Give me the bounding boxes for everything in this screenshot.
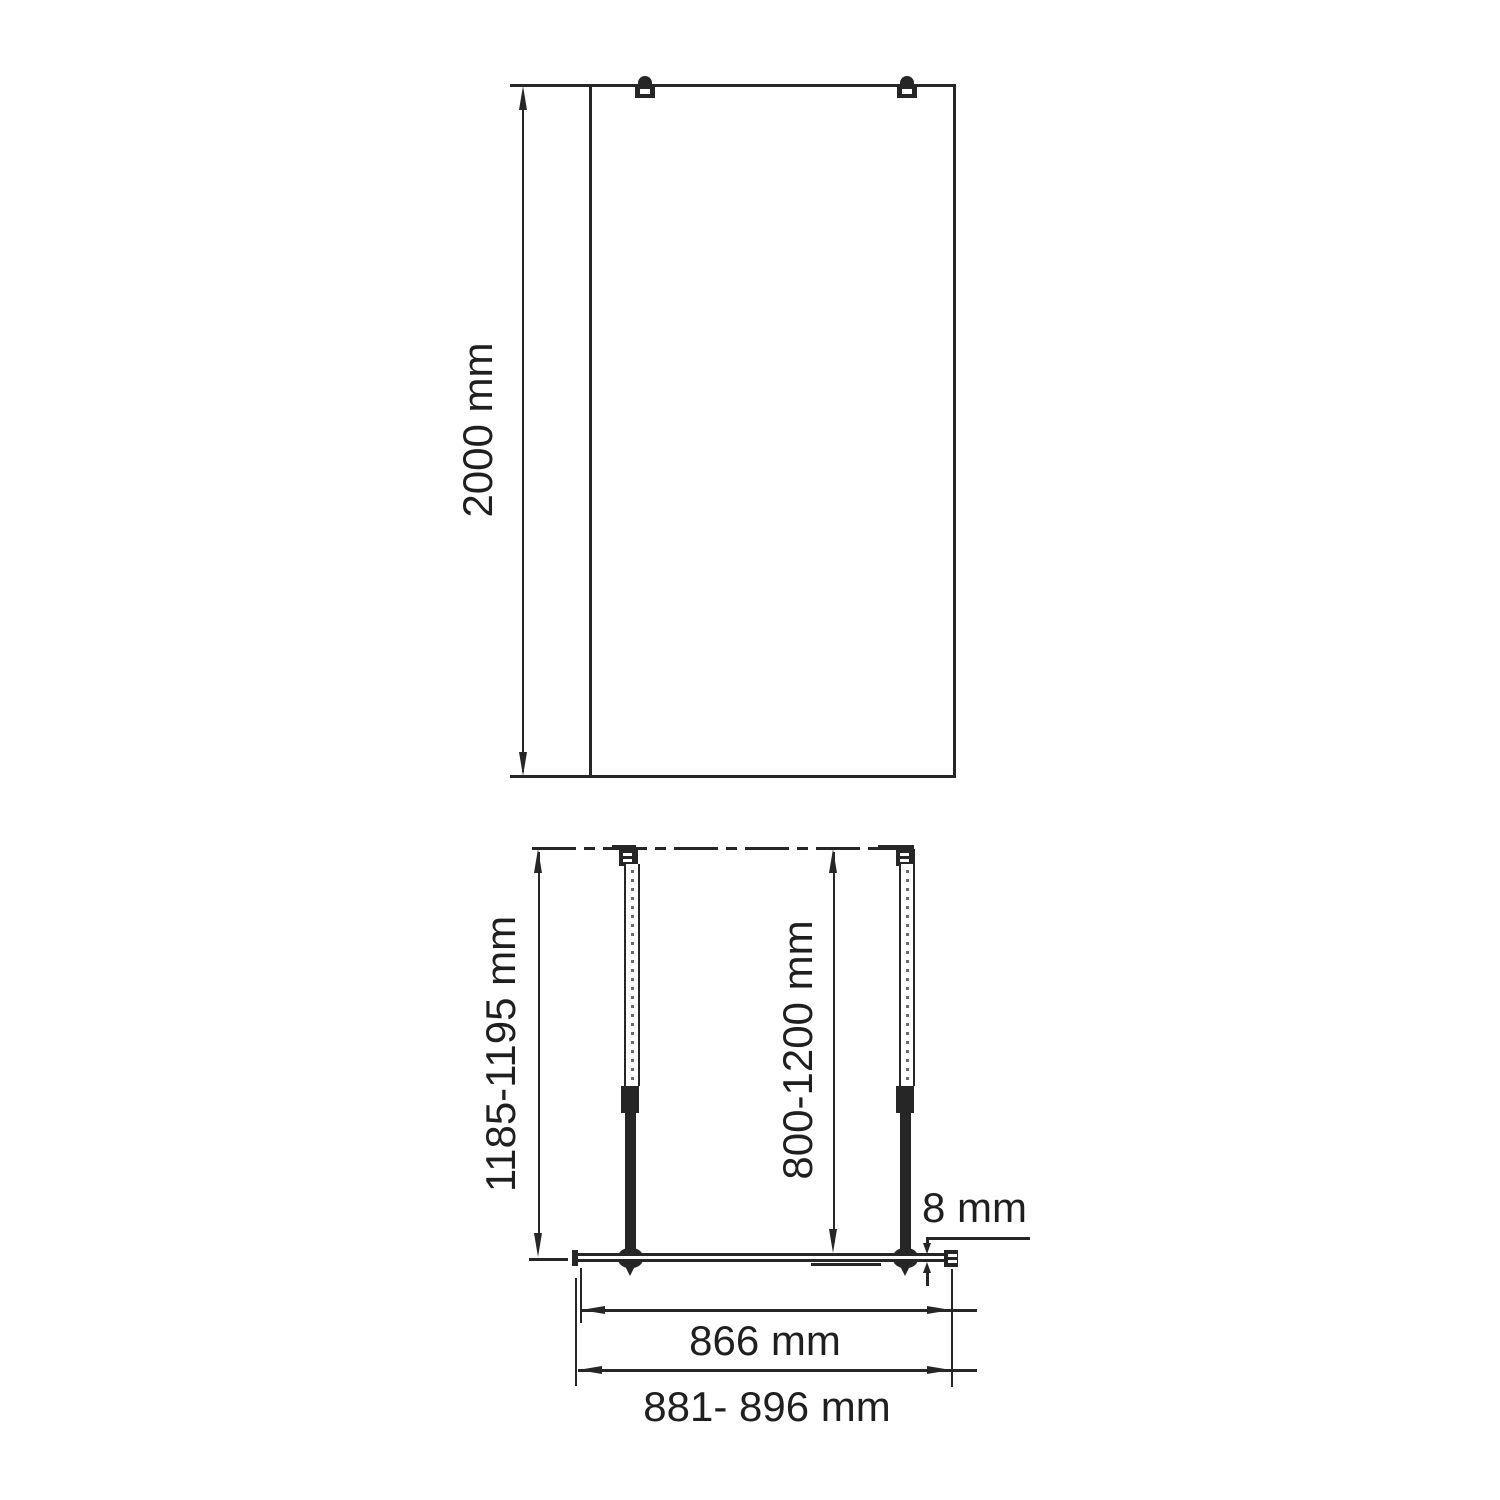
depth-dimension-line: [538, 852, 540, 1242]
thread-ticks: [631, 864, 634, 1086]
clamp-slit: [623, 859, 632, 862]
glass-panel-front-outline: [589, 84, 956, 778]
height-dimension-line: [522, 92, 524, 772]
support-bar-dimension-line: [833, 852, 835, 1242]
technical-drawing: 2000 mm 1185-1195 mm: [0, 0, 1500, 1500]
arrow-down-icon: [829, 1229, 837, 1253]
clamp-slit: [900, 859, 909, 862]
extension-line: [580, 1268, 582, 1323]
arrow-down-icon: [519, 752, 527, 776]
support-bar-clamp-tip: [625, 1266, 635, 1276]
arrow-right-icon: [927, 1366, 951, 1374]
glass-end-cap: [572, 1250, 578, 1266]
mount-bracket-icon: [635, 85, 655, 98]
depth-dimension-label: 1185-1195 mm: [477, 909, 525, 1199]
thickness-leader-line: [926, 1271, 929, 1286]
support-bar-threaded-tube: [624, 864, 640, 1086]
support-bar-dimension-label: 800-1200 mm: [774, 915, 822, 1185]
arrow-right-icon: [927, 1306, 951, 1314]
thickness-leader-line: [926, 1237, 1030, 1240]
arrow-down-icon: [534, 1233, 542, 1257]
bracket-slit: [948, 1254, 957, 1257]
thread-ticks: [906, 864, 909, 1086]
height-dimension-label: 2000 mm: [454, 320, 502, 540]
overall-width-dimension-label: 881- 896 mm: [617, 1384, 917, 1430]
glass-thickness-label: 8 mm: [922, 1188, 1052, 1228]
arrow-left-icon: [581, 1306, 605, 1314]
support-bar-clamp-tip: [900, 1266, 910, 1276]
support-bar-sleeve: [621, 1086, 639, 1113]
support-bar-threaded-tube: [899, 864, 915, 1086]
bracket-slot: [902, 89, 912, 94]
wall-profile-bracket: [944, 1250, 958, 1267]
extension-line: [575, 1278, 577, 1386]
glass-width-dimension-line: [581, 1309, 977, 1312]
bracket-slot: [640, 89, 650, 94]
clamp-slit: [900, 853, 909, 856]
support-bar-lower-tube: [625, 1113, 636, 1253]
overall-width-dimension-line: [578, 1369, 977, 1372]
bracket-slit: [948, 1260, 957, 1263]
support-bar-lower-tube: [900, 1113, 911, 1253]
support-bar-sleeve: [896, 1086, 914, 1113]
glass-panel-plan-edge: [576, 1253, 945, 1262]
mount-bracket-icon: [897, 85, 917, 98]
wall-center-dashed-line: [532, 847, 913, 850]
clamp-slit: [623, 853, 632, 856]
arrow-up-icon: [534, 849, 542, 873]
arrow-left-icon: [578, 1366, 602, 1374]
arrow-up-icon: [829, 849, 837, 873]
extension-tick: [529, 1258, 568, 1261]
arrow-up-icon: [519, 86, 527, 110]
extension-tick: [811, 1263, 881, 1266]
glass-width-dimension-label: 866 mm: [655, 1318, 875, 1364]
arrow-down-icon: [923, 1243, 931, 1254]
